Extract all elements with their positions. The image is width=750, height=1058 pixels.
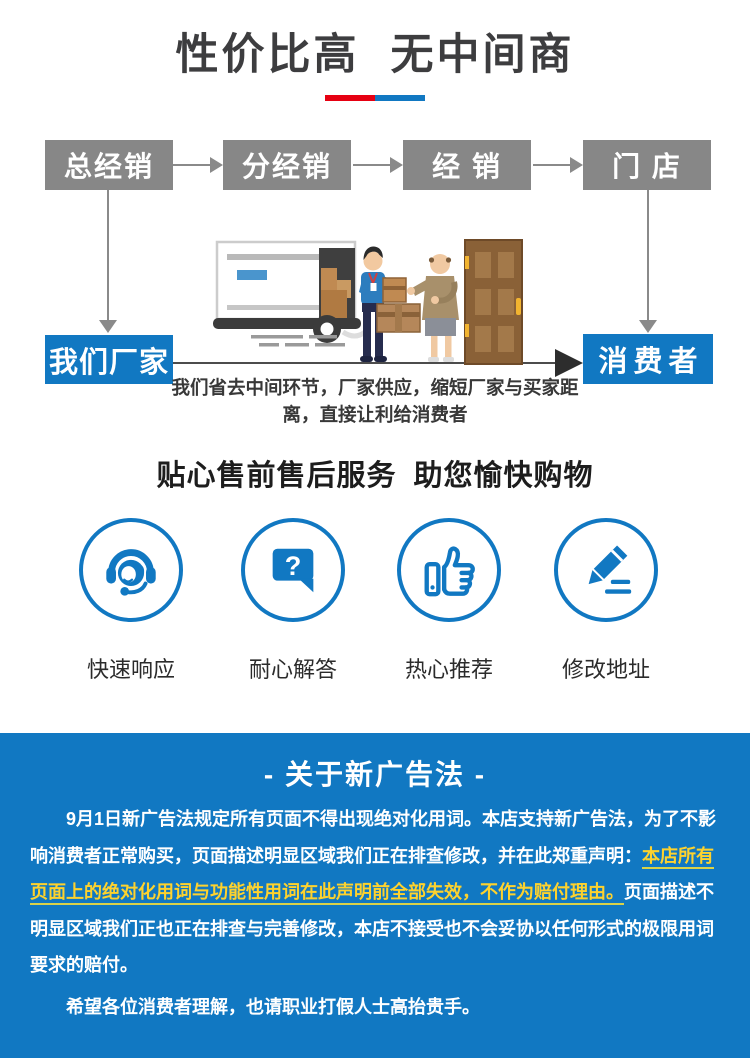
notice-body: 9月1日新广告法规定所有页面不得出现绝对化用词。本店支持新广告法，为了不影响消费… (30, 801, 720, 1025)
notice-highlight-text: 页面上的绝对化用词与功能性用词在此声明前全部失效，不作为赔付理由。 (30, 882, 624, 905)
notice-line: 9月1日新广告法规定所有页面不得出现绝对化用词。本店支持新广告法，为了不影 (30, 801, 720, 838)
service-label-address: 修改地址 (536, 652, 676, 684)
services-title: 贴心售前售后服务 助您愉快购物 (0, 452, 750, 494)
arrow-right-icon (210, 157, 223, 173)
arrow-line (533, 164, 571, 166)
service-circle-response (79, 518, 183, 622)
flow-box-sub-distributor: 分经销 (223, 140, 351, 190)
flow-box-general-distributor: 总经销 (45, 140, 173, 190)
promo-page: 性价比高 无中间商 总经销 分经销 经 销 门 店 我们厂家 消费者 (0, 0, 750, 1058)
flow-caption-line1: 我们省去中间环节，厂家供应，缩短厂家与买家距 (0, 374, 750, 401)
question-bubble-icon: ? (262, 539, 324, 601)
headset-icon (100, 539, 162, 601)
notice-text: 明显区域我们正也正在排查与完善修改，本店不接受也不会妥协以任何形式的极限用词 (30, 919, 714, 939)
notice-text: 9月1日新广告法规定所有页面不得出现绝对化用词。本店支持新广告法，为了不影 (66, 809, 716, 829)
pencil-icon (575, 539, 637, 601)
notice-text: 希望各位消费者理解，也请职业打假人士高抬贵手。 (66, 997, 480, 1017)
arrow-down-icon (639, 320, 657, 333)
accent-blue-bar (375, 95, 425, 101)
arrow-right-icon (390, 157, 403, 173)
notice-title: - 关于新广告法 - (0, 753, 750, 793)
service-circle-address (554, 518, 658, 622)
flow-box-store: 门 店 (583, 140, 711, 190)
notice-line: 响消费者正常购买，页面描述明显区域我们正在排查修改，并在此郑重声明：本店所有 (30, 838, 720, 875)
notice-text: 响消费者正常购买，页面描述明显区域我们正在排查修改，并在此郑重声明： (30, 846, 642, 866)
service-circle-recommend (397, 518, 501, 622)
flow-caption: 我们省去中间环节，厂家供应，缩短厂家与买家距 离，直接让利给消费者 (0, 374, 750, 428)
service-label-response: 快速响应 (61, 652, 201, 684)
arrow-line (173, 164, 211, 166)
arrow-right-icon (570, 157, 583, 173)
notice-section: - 关于新广告法 - 9月1日新广告法规定所有页面不得出现绝对化用词。本店支持新… (0, 733, 750, 1058)
delivery-illustration (193, 228, 575, 378)
arrow-line (647, 190, 649, 321)
page-title: 性价比高 无中间商 (0, 20, 750, 82)
title-accent-bar (325, 95, 425, 101)
notice-text: 要求的赔付。 (30, 955, 138, 975)
flow-caption-line2: 离，直接让利给消费者 (0, 401, 750, 428)
notice-line: 希望各位消费者理解，也请职业打假人士高抬贵手。 (30, 989, 720, 1026)
notice-line: 页面上的绝对化用词与功能性用词在此声明前全部失效，不作为赔付理由。页面描述不 (30, 874, 720, 911)
flow-box-dealer: 经 销 (403, 140, 531, 190)
accent-red-bar (325, 95, 375, 101)
notice-line: 明显区域我们正也正在排查与完善修改，本店不接受也不会妥协以任何形式的极限用词 (30, 911, 720, 948)
arrow-line (107, 190, 109, 321)
thumb-up-icon (418, 539, 480, 601)
notice-text: 页面描述不 (624, 882, 714, 902)
notice-highlight-text: 本店所有 (642, 846, 714, 869)
service-label-recommend: 热心推荐 (379, 652, 519, 684)
service-circle-answer: ? (241, 518, 345, 622)
svg-text:?: ? (285, 550, 302, 581)
arrow-down-icon (99, 320, 117, 333)
arrow-line (353, 164, 391, 166)
notice-line: 要求的赔付。 (30, 947, 720, 984)
service-label-answer: 耐心解答 (223, 652, 363, 684)
